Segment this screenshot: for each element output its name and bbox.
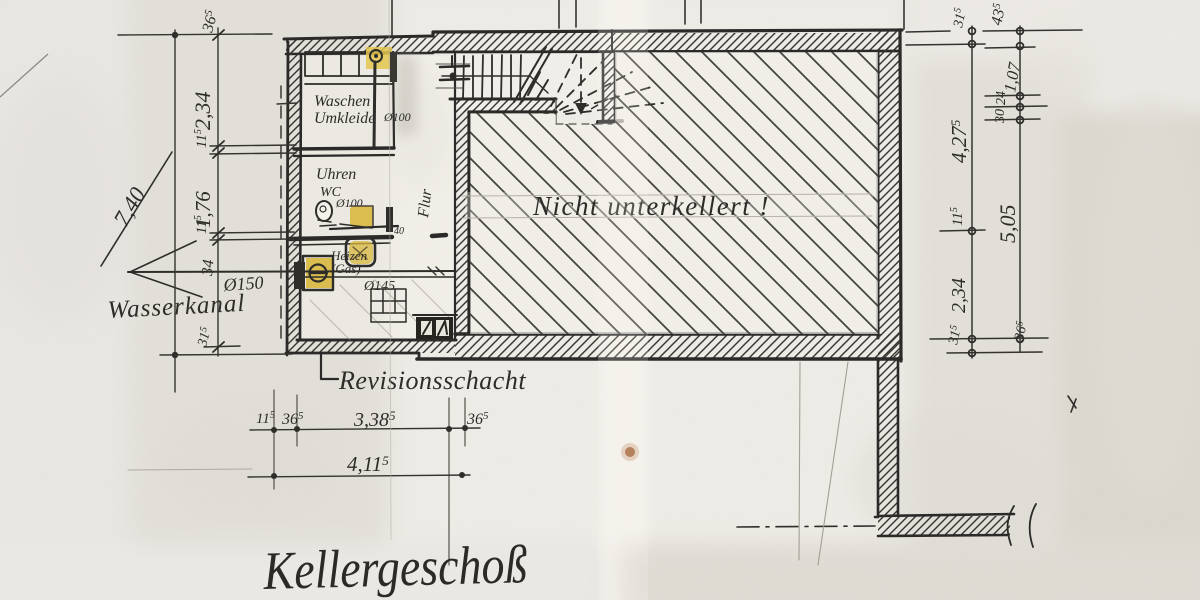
svg-text:34: 34 [199, 259, 217, 277]
svg-text:Nicht unterkellert !: Nicht unterkellert ! [532, 191, 770, 221]
svg-text:Waschen: Waschen [314, 93, 370, 110]
svg-text:30: 30 [993, 109, 1008, 124]
svg-text:(Gas): (Gas) [331, 261, 361, 276]
svg-text:Ø100: Ø100 [383, 110, 411, 124]
svg-text:Kellergeschoß: Kellergeschoß [262, 534, 528, 600]
svg-text:Revisionsschacht: Revisionsschacht [338, 366, 526, 395]
svg-text:2,34: 2,34 [190, 92, 215, 131]
svg-text:40: 40 [394, 226, 404, 237]
svg-text:5,05: 5,05 [995, 205, 1020, 244]
svg-text:Umkleide: Umkleide [314, 110, 375, 127]
svg-text:24: 24 [994, 91, 1009, 105]
svg-text:2,34: 2,34 [948, 278, 970, 313]
svg-text:Uhren: Uhren [316, 166, 356, 183]
